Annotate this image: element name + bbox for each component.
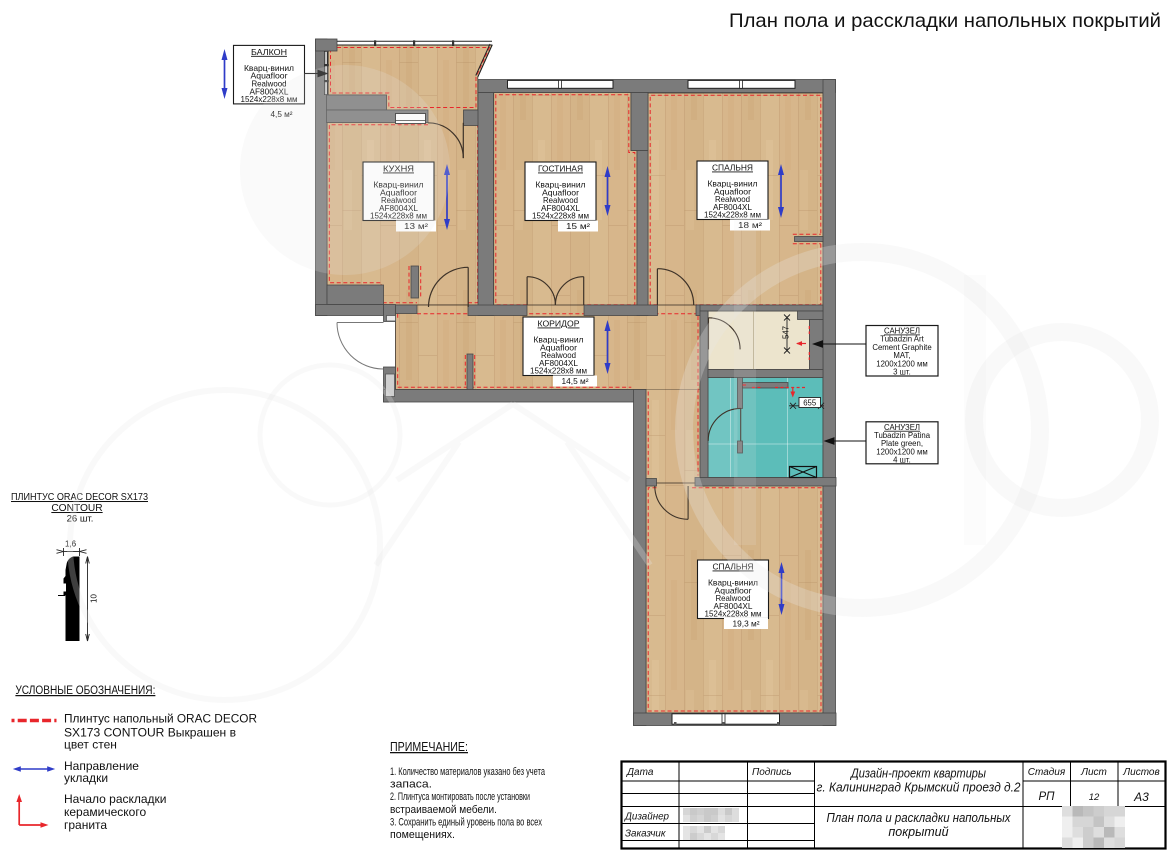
svg-text:ГОСТИНАЯ: ГОСТИНАЯ	[538, 164, 583, 174]
svg-text:1. Количество материалов указа: 1. Количество материалов указано без уче…	[390, 766, 546, 778]
svg-text:встраиваемой мебели.: встраиваемой мебели.	[390, 804, 497, 816]
svg-text:14,5 м²: 14,5 м²	[562, 377, 589, 386]
svg-text:СПАЛЬНЯ: СПАЛЬНЯ	[712, 163, 753, 173]
svg-text:цвет стен: цвет стен	[64, 738, 117, 752]
svg-text:керамического: керамического	[64, 805, 146, 819]
svg-text:12: 12	[1089, 792, 1100, 803]
svg-text:19,3 м²: 19,3 м²	[733, 620, 760, 629]
svg-text:укладки: укладки	[64, 771, 108, 785]
svg-text:4 шт.: 4 шт.	[893, 456, 911, 465]
svg-text:Дизайн-проект квартиры: Дизайн-проект квартиры	[849, 767, 986, 781]
svg-text:г. Калининград Крымский проезд: г. Калининград Крымский проезд д.2	[817, 781, 1021, 795]
svg-text:Стадия: Стадия	[1028, 767, 1066, 778]
svg-text:10: 10	[90, 594, 99, 603]
svg-text:покрытий: покрытий	[888, 825, 948, 839]
svg-text:15 м²: 15 м²	[566, 222, 590, 231]
svg-text:Плинтус напольный ORAC DECOR: Плинтус напольный ORAC DECOR	[64, 712, 257, 726]
svg-text:гранита: гранита	[64, 818, 107, 832]
svg-text:План пола и раскладки напольны: План пола и раскладки напольных	[827, 811, 1012, 825]
svg-text:Начало раскладки: Начало раскладки	[64, 792, 167, 806]
svg-text:3. Сохранить единый уровень по: 3. Сохранить единый уровень пола во всех	[390, 816, 542, 828]
svg-text:помещениях.: помещениях.	[390, 829, 455, 841]
svg-text:КОРИДОР: КОРИДОР	[538, 319, 580, 329]
svg-text:Лист: Лист	[1080, 767, 1107, 778]
svg-text:Подпись: Подпись	[752, 767, 792, 778]
svg-text:БАЛКОН: БАЛКОН	[251, 47, 287, 57]
svg-text:УСЛОВНЫЕ ОБОЗНАЧЕНИЯ:: УСЛОВНЫЕ ОБОЗНАЧЕНИЯ:	[15, 683, 155, 697]
svg-text:запаса.: запаса.	[390, 779, 432, 791]
svg-text:Дизайнер: Дизайнер	[624, 812, 670, 823]
svg-text:ПРИМЕЧАНИЕ:: ПРИМЕЧАНИЕ:	[390, 739, 468, 754]
svg-text:1524x228x8 мм: 1524x228x8 мм	[532, 212, 589, 221]
svg-text:3 шт.: 3 шт.	[893, 368, 911, 377]
svg-text:План пола и расскладки напольн: План пола и расскладки напольных покрыти…	[729, 10, 1161, 32]
svg-text:655: 655	[803, 398, 817, 407]
svg-text:Дата: Дата	[626, 767, 654, 778]
svg-text:Заказчик: Заказчик	[625, 829, 666, 840]
svg-text:1524x228x8 мм: 1524x228x8 мм	[705, 610, 762, 619]
svg-text:РП: РП	[1038, 791, 1055, 803]
svg-text:547: 547	[782, 326, 791, 339]
svg-text:Листов: Листов	[1122, 767, 1159, 778]
svg-text:2. Плинтуса монтировать после: 2. Плинтуса монтировать после установки	[390, 791, 530, 803]
svg-text:А3: А3	[1133, 790, 1149, 804]
svg-text:1524x228x8 мм: 1524x228x8 мм	[530, 367, 587, 376]
